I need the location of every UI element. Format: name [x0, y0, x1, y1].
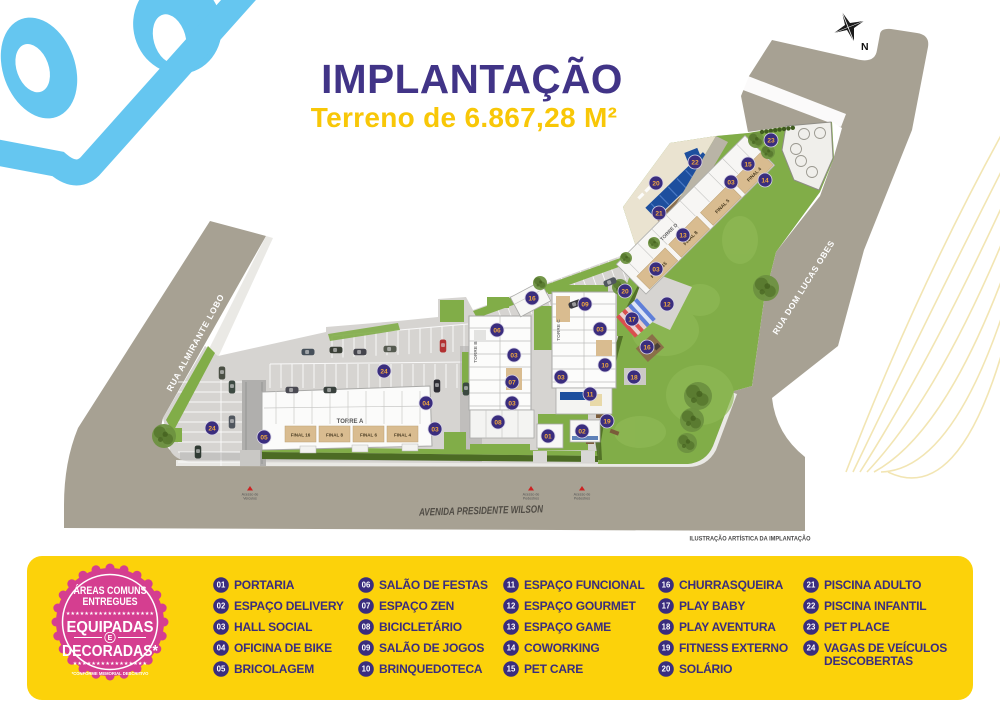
svg-text:FINAL 4: FINAL 4 — [394, 433, 411, 438]
svg-text:PISCINA INFANTIL: PISCINA INFANTIL — [824, 599, 926, 613]
svg-text:01: 01 — [217, 581, 226, 590]
svg-text:15: 15 — [744, 161, 752, 168]
svg-text:VAGAS DE VEÍCULOS: VAGAS DE VEÍCULOS — [824, 640, 947, 655]
svg-text:22: 22 — [807, 602, 816, 611]
svg-text:17: 17 — [662, 602, 671, 611]
svg-text:E: E — [108, 635, 113, 642]
svg-text:OFICINA DE BIKE: OFICINA DE BIKE — [234, 641, 332, 655]
svg-text:IMPLANTAÇÃO: IMPLANTAÇÃO — [321, 56, 623, 102]
svg-text:02: 02 — [578, 428, 586, 435]
svg-text:ESPAÇO DELIVERY: ESPAÇO DELIVERY — [234, 599, 344, 613]
svg-text:FITNESS EXTERNO: FITNESS EXTERNO — [679, 641, 788, 655]
svg-text:08: 08 — [494, 419, 502, 426]
svg-text:09: 09 — [581, 301, 589, 308]
svg-text:Veículos: Veículos — [243, 497, 257, 501]
svg-text:13: 13 — [507, 623, 516, 632]
svg-text:PET CARE: PET CARE — [524, 662, 583, 676]
svg-text:BICICLETÁRIO: BICICLETÁRIO — [379, 619, 462, 634]
svg-text:SOLÁRIO: SOLÁRIO — [679, 661, 732, 676]
svg-text:15: 15 — [507, 665, 516, 674]
svg-text:11: 11 — [587, 391, 594, 398]
svg-text:SALÃO DE FESTAS: SALÃO DE FESTAS — [379, 577, 488, 592]
svg-text:N: N — [861, 41, 869, 53]
svg-text:07: 07 — [508, 379, 516, 386]
svg-text:PET PLACE: PET PLACE — [824, 620, 890, 634]
svg-text:19: 19 — [662, 644, 671, 653]
svg-text:SALÃO DE JOGOS: SALÃO DE JOGOS — [379, 640, 484, 655]
svg-text:12: 12 — [663, 301, 671, 308]
svg-text:11: 11 — [507, 581, 516, 590]
svg-text:BRICOLAGEM: BRICOLAGEM — [234, 662, 314, 676]
svg-text:21: 21 — [807, 581, 816, 590]
svg-text:20: 20 — [652, 180, 660, 187]
svg-text:08: 08 — [362, 623, 371, 632]
svg-text:12: 12 — [507, 602, 516, 611]
svg-text:19: 19 — [603, 418, 611, 425]
svg-text:14: 14 — [761, 177, 769, 184]
svg-text:18: 18 — [662, 623, 671, 632]
svg-text:DESCOBERTAS: DESCOBERTAS — [824, 654, 913, 668]
svg-text:03: 03 — [596, 326, 604, 333]
svg-text:03: 03 — [217, 623, 226, 632]
svg-text:23: 23 — [767, 137, 775, 144]
svg-text:ESPAÇO ZEN: ESPAÇO ZEN — [379, 599, 454, 613]
svg-text:03: 03 — [508, 400, 516, 407]
svg-text:01: 01 — [544, 433, 552, 440]
svg-text:PORTARIA: PORTARIA — [234, 578, 295, 592]
svg-text:16: 16 — [662, 581, 671, 590]
svg-text:TORRE B: TORRE B — [473, 341, 479, 363]
svg-text:TORRE C: TORRE C — [556, 319, 562, 341]
svg-text:ESPAÇO GOURMET: ESPAÇO GOURMET — [524, 599, 637, 613]
svg-text:05: 05 — [260, 434, 268, 441]
svg-text:FINAL 16: FINAL 16 — [291, 433, 311, 438]
svg-text:23: 23 — [807, 623, 816, 632]
svg-text:Pedestres: Pedestres — [574, 497, 590, 501]
svg-text:03: 03 — [431, 426, 439, 433]
svg-text:20: 20 — [662, 665, 671, 674]
svg-text:ENTREGUES: ENTREGUES — [83, 596, 138, 608]
svg-text:03: 03 — [557, 374, 565, 381]
svg-text:24: 24 — [208, 425, 216, 432]
svg-text:BRINQUEDOTECA: BRINQUEDOTECA — [379, 662, 483, 676]
svg-text:24: 24 — [380, 368, 388, 375]
svg-text:02: 02 — [217, 602, 226, 611]
svg-text:16: 16 — [643, 344, 651, 351]
svg-text:14: 14 — [507, 644, 516, 653]
svg-text:HALL SOCIAL: HALL SOCIAL — [234, 620, 312, 634]
svg-text:13: 13 — [679, 232, 687, 239]
svg-text:*CONFORME MEMORIAL DESCRITIVO: *CONFORME MEMORIAL DESCRITIVO — [72, 671, 149, 676]
svg-text:03: 03 — [727, 179, 735, 186]
svg-text:20: 20 — [621, 288, 629, 295]
svg-text:21: 21 — [655, 210, 663, 217]
svg-text:10: 10 — [601, 362, 609, 369]
svg-text:COWORKING: COWORKING — [524, 641, 600, 655]
svg-text:CHURRASQUEIRA: CHURRASQUEIRA — [679, 578, 784, 592]
svg-text:09: 09 — [362, 644, 371, 653]
svg-text:TORRE A: TORRE A — [337, 419, 364, 425]
svg-text:17: 17 — [628, 316, 636, 323]
svg-text:PLAY BABY: PLAY BABY — [679, 599, 745, 613]
svg-text:ESPAÇO GAME: ESPAÇO GAME — [524, 620, 611, 634]
svg-text:PLAY AVENTURA: PLAY AVENTURA — [679, 620, 776, 634]
svg-text:07: 07 — [362, 602, 371, 611]
svg-text:FINAL 8: FINAL 8 — [326, 433, 343, 438]
svg-text:ILUSTRAÇÃO ARTÍSTICA DA IMPLAN: ILUSTRAÇÃO ARTÍSTICA DA IMPLANTAÇÃO — [690, 534, 811, 543]
svg-text:24: 24 — [807, 644, 816, 653]
svg-text:FINAL 6: FINAL 6 — [360, 433, 377, 438]
svg-text:05: 05 — [217, 665, 226, 674]
svg-text:★★★★★★★★★★★★★★★★★★★: ★★★★★★★★★★★★★★★★★★★ — [66, 611, 155, 617]
svg-text:★★★★★★★★★★★★★★★★: ★★★★★★★★★★★★★★★★ — [73, 661, 148, 667]
svg-text:22: 22 — [691, 159, 699, 166]
svg-text:ESPAÇO FUNCIONAL: ESPAÇO FUNCIONAL — [524, 578, 645, 592]
svg-text:10: 10 — [362, 665, 371, 674]
svg-text:06: 06 — [362, 581, 371, 590]
svg-text:Terreno de 6.867,28 M²: Terreno de 6.867,28 M² — [311, 102, 617, 133]
svg-text:06: 06 — [493, 327, 501, 334]
svg-text:04: 04 — [217, 644, 226, 653]
svg-text:03: 03 — [652, 266, 660, 273]
svg-text:DECORADAS*: DECORADAS* — [62, 643, 159, 660]
svg-text:Pedestres: Pedestres — [523, 497, 539, 501]
svg-text:PISCINA ADULTO: PISCINA ADULTO — [824, 578, 921, 592]
svg-text:04: 04 — [422, 400, 430, 407]
svg-text:03: 03 — [510, 352, 518, 359]
svg-text:16: 16 — [528, 295, 536, 302]
svg-text:18: 18 — [630, 374, 638, 381]
